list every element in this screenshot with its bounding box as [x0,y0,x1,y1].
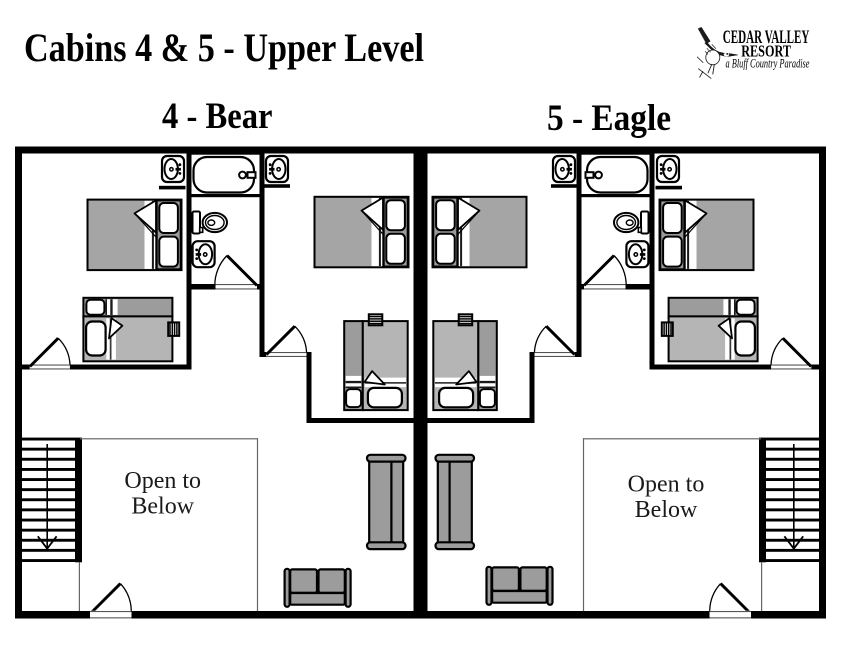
svg-text:5 - Eagle: 5 - Eagle [547,98,671,139]
svg-text:Below: Below [131,494,194,520]
svg-text:Open to: Open to [124,468,201,494]
svg-text:a Bluff Country Paradise: a Bluff Country Paradise [726,57,810,71]
svg-text:Cabins 4 & 5 - Upper Level: Cabins 4 & 5 - Upper Level [24,25,424,70]
svg-text:Below: Below [635,497,698,523]
svg-text:4 - Bear: 4 - Bear [162,96,273,137]
svg-text:Open to: Open to [628,472,705,498]
